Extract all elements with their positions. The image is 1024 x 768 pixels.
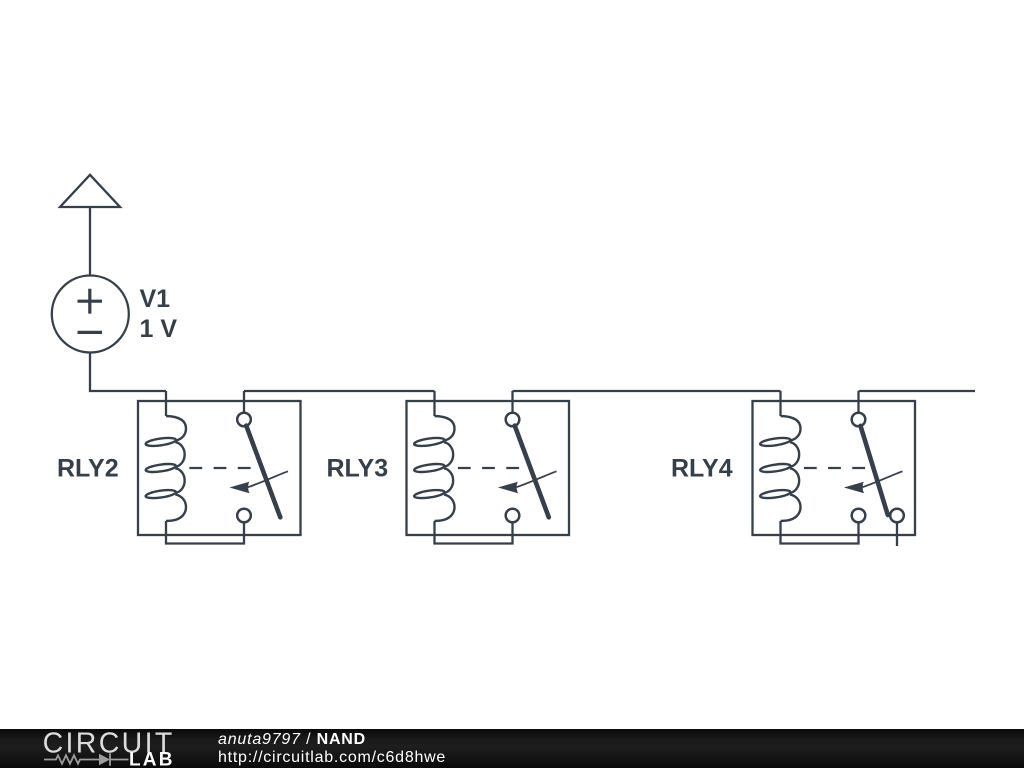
svg-text:LAB: LAB bbox=[129, 750, 175, 768]
svg-text:RLY3: RLY3 bbox=[327, 455, 389, 483]
svg-text:RLY2: RLY2 bbox=[57, 455, 119, 483]
svg-text:V1: V1 bbox=[140, 285, 171, 313]
svg-text:RLY4: RLY4 bbox=[671, 455, 733, 483]
svg-text:1 V: 1 V bbox=[140, 315, 178, 343]
